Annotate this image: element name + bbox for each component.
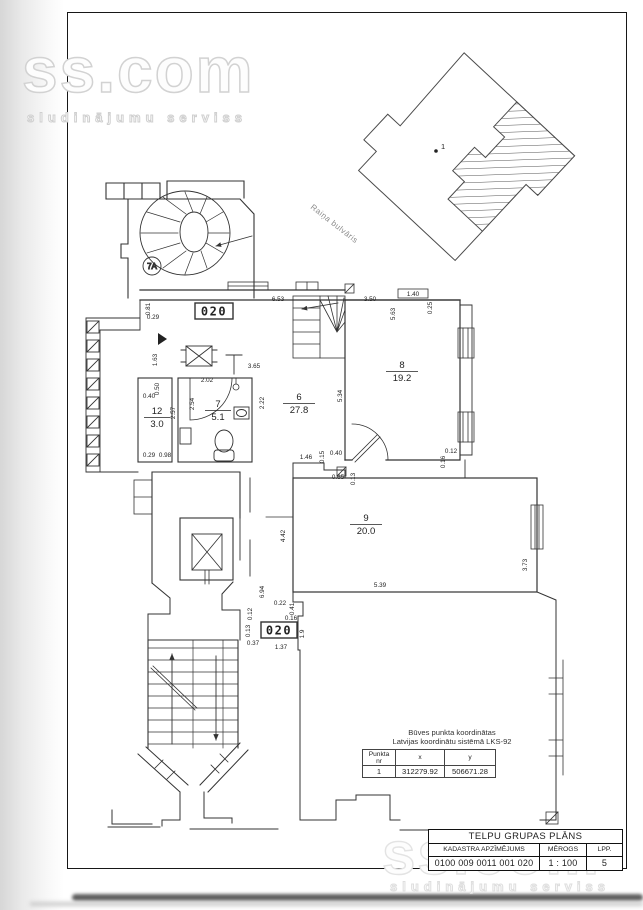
dimension-label: 3.65 (248, 363, 261, 370)
toilet-fixture (214, 430, 234, 461)
cadastre-value: 0100 009 0011 001 020 (429, 857, 540, 870)
stair-id-label: 7A (147, 262, 157, 271)
dimension-label: 2.57 (170, 406, 177, 419)
dimension-label: 0.15 (319, 450, 326, 463)
room-labels: 123.075.1627.8819.2920.0 (144, 360, 418, 537)
dimension-label: 6.94 (259, 585, 266, 598)
door-swing-triangle (158, 333, 167, 345)
coords-header-y: y (445, 750, 496, 766)
dimension-label: 2.22 (259, 396, 266, 409)
room-area: 3.0 (150, 419, 163, 430)
dimension-label: 0.16 (285, 615, 298, 622)
wall-fixture (180, 428, 191, 444)
cadastre-label: KADASTRA APZĪMĒJUMS (429, 844, 540, 857)
flue-symbol (181, 346, 217, 366)
room-number: 8 (399, 360, 404, 371)
coords-y-value: 506671.28 (445, 766, 496, 778)
coords-x-value: 312279.92 (396, 766, 445, 778)
scale-label: MĒROGS (540, 844, 587, 857)
coords-header-point: Punkta nr (363, 750, 396, 766)
dimension-label: 1.40 (407, 291, 420, 298)
building-point-marker (434, 149, 438, 153)
watermark-tagline-bottom: sludinājumu serviss (390, 879, 610, 894)
dimension-label: 6.53 (272, 296, 285, 303)
table-row: 1 312279.92 506671.28 (363, 766, 496, 778)
room-area: 20.0 (357, 526, 376, 537)
scale-value: 1 : 100 (540, 857, 587, 870)
dimension-label: 1.46 (300, 454, 313, 461)
unit-number-bottom: 020 (266, 624, 292, 638)
dimension-labels: 6.533.501.400.255.635.343.652.022.542.57… (143, 291, 529, 651)
dimension-label: 0.41 (289, 602, 296, 615)
dimension-label: 0.40 (143, 393, 156, 400)
dimension-label: 0.98 (159, 452, 172, 459)
room-number: 6 (296, 392, 301, 403)
connector-walls (293, 284, 465, 478)
room-number: 7 (215, 399, 220, 410)
door-arc (352, 424, 388, 462)
coords-point-nr: 1 (363, 766, 396, 778)
coordinates-table: Būves punkta koordinātas Latvijas koordi… (352, 729, 552, 778)
room-number: 9 (363, 513, 368, 524)
dimension-label: 2.02 (201, 377, 214, 384)
spiral-staircase (106, 181, 254, 298)
title-block: TELPU GRUPAS PLĀNS KADASTRA APZĪMĒJUMS M… (428, 829, 623, 871)
dimension-label: 3.73 (522, 558, 529, 571)
west-facade (86, 300, 140, 472)
street-name-label: Raiņa bulvāris (309, 202, 360, 245)
scanned-floor-plan-page: { "watermark": { "brand": "ss.com", "tag… (0, 0, 643, 910)
main-staircase (108, 640, 278, 829)
dimension-label: 1.9 (299, 629, 306, 638)
dimension-label: 0.12 (247, 607, 254, 620)
coordinates-table-subtitle: Latvijas koordinātu sistēmā LKS-92 (352, 738, 552, 747)
dimension-label: 0.13 (245, 624, 252, 637)
drawing-title: TELPU GRUPAS PLĀNS (429, 830, 622, 844)
dimension-label: 0.16 (440, 455, 447, 468)
watermark-brand-top: ss.com (22, 38, 255, 102)
dimension-label: 0.37 (247, 640, 260, 647)
dimension-label: 0.29 (143, 452, 156, 459)
drain-symbol (233, 384, 239, 390)
dimension-label: 0.22 (274, 600, 287, 607)
unit-number-top: 020 (201, 305, 227, 319)
unit-location-hatch (436, 102, 574, 242)
site-plan: 1 Raiņa bulvāris (309, 43, 575, 271)
room-area: 5.1 (211, 412, 224, 423)
room-number: 12 (152, 406, 163, 417)
facade-hatch-squares (87, 321, 99, 466)
building-point-label: 1 (441, 142, 445, 151)
dimension-label: 0.29 (147, 314, 160, 321)
room-area: 19.2 (393, 373, 412, 384)
chimney-symbol (226, 355, 242, 374)
page-label: LPP. (587, 844, 622, 857)
window-icon (134, 480, 152, 514)
dimension-label: 4.42 (280, 529, 287, 542)
dimension-label: 0.13 (350, 472, 357, 485)
winder-staircase (293, 296, 345, 358)
dimension-label: 5.39 (374, 582, 387, 589)
dimension-label: 5.63 (390, 307, 397, 320)
page-value: 5 (587, 857, 622, 870)
room-area: 27.8 (290, 405, 309, 416)
room-9-walls (266, 478, 543, 592)
coords-header-x: x (396, 750, 445, 766)
stair-rail (151, 666, 197, 710)
elevator-shaft (134, 472, 250, 640)
dimension-label: 2.54 (189, 397, 196, 410)
dimension-label: 0.40 (330, 450, 343, 457)
dimension-label: 1.63 (152, 353, 159, 366)
lower-right-walls (293, 592, 563, 830)
sink-fixture (234, 407, 249, 419)
dimension-label: 5.34 (337, 389, 344, 402)
dimension-label: 3.50 (364, 296, 377, 303)
dimension-label: 1.37 (275, 644, 288, 651)
dimension-label: 0.12 (445, 448, 458, 455)
dimension-label: 0.25 (427, 301, 434, 314)
watermark-tagline-top: sludinājumu serviss (27, 110, 247, 125)
dimension-label: 0.65 (332, 474, 345, 481)
